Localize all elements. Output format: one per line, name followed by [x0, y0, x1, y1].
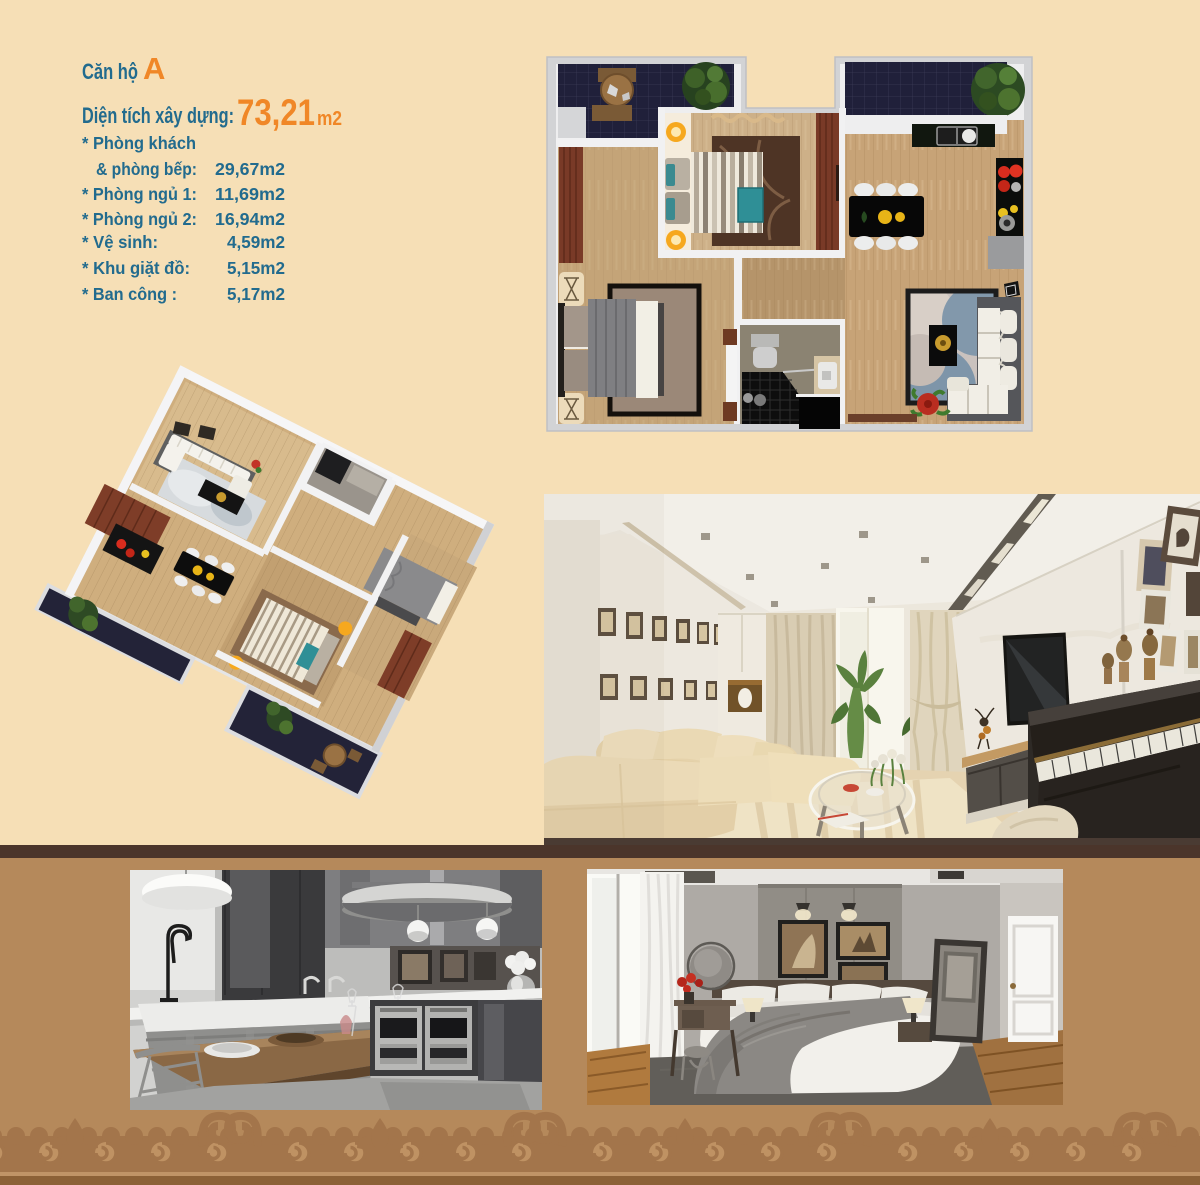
svg-text:* Ban công :: * Ban công : — [82, 284, 177, 304]
svg-text:Diện tích xây dựng:: Diện tích xây dựng: — [82, 103, 234, 128]
svg-text:* Phòng khách: * Phòng khách — [82, 133, 196, 153]
svg-text:4,59m2: 4,59m2 — [227, 232, 285, 252]
svg-text:A: A — [143, 51, 165, 86]
svg-text:* Khu giặt đồ:: * Khu giặt đồ: — [82, 258, 190, 278]
svg-text:Căn hộ: Căn hộ — [82, 59, 138, 84]
svg-text:11,69m2: 11,69m2 — [215, 184, 285, 204]
svg-text:5,17m2: 5,17m2 — [227, 284, 285, 304]
svg-text:m2: m2 — [317, 108, 342, 130]
svg-text:* Phòng ngủ 1:: * Phòng ngủ 1: — [82, 184, 197, 204]
svg-text:& phòng bếp:: & phòng bếp: — [96, 159, 197, 179]
svg-text:5,15m2: 5,15m2 — [227, 258, 285, 278]
svg-text:73,21: 73,21 — [237, 92, 315, 133]
svg-text:16,94m2: 16,94m2 — [215, 209, 285, 229]
svg-text:29,67m2: 29,67m2 — [215, 159, 285, 179]
svg-text:* Phòng ngủ 2:: * Phòng ngủ 2: — [82, 209, 197, 229]
svg-text:* Vệ sinh:: * Vệ sinh: — [82, 232, 158, 252]
